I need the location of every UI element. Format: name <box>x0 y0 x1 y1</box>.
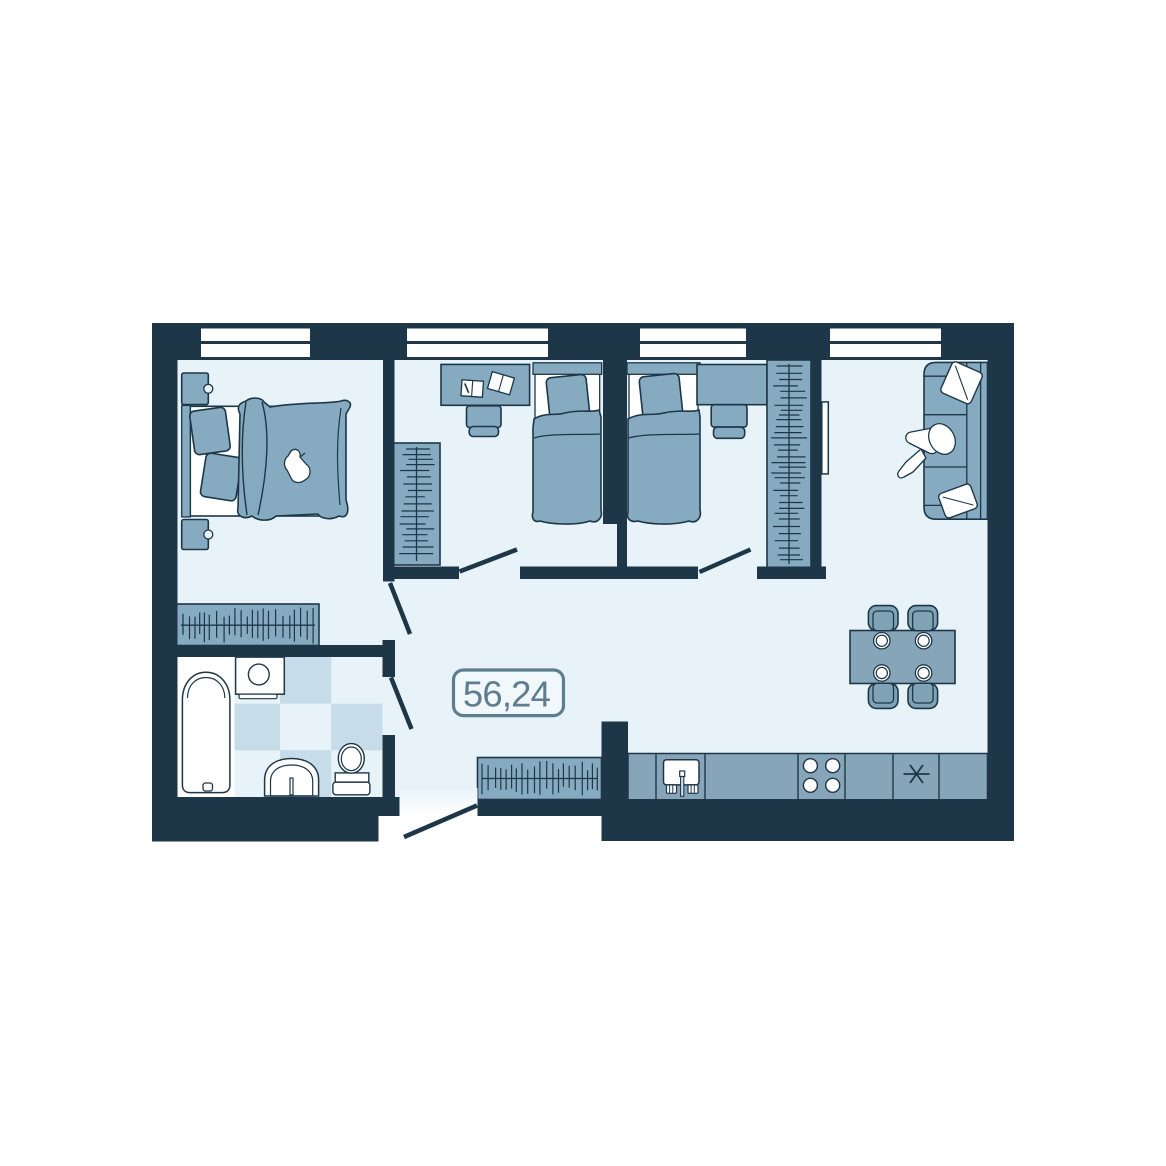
svg-text:56,24: 56,24 <box>463 674 551 715</box>
